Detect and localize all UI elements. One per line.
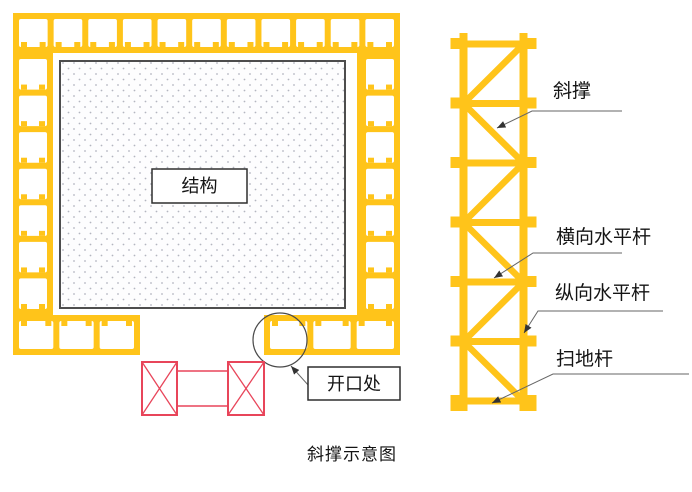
- longitudinal-bar-leader: [524, 311, 663, 333]
- longitudinal-bar-label: 纵向水平杆: [555, 282, 650, 304]
- sweep-bar-label: 扫地杆: [556, 348, 613, 370]
- opening-label: 开口处: [327, 374, 381, 395]
- diagonal-brace-label: 斜撑: [553, 80, 591, 102]
- diagonal-brace-leader: [497, 111, 622, 128]
- opening-callout: 开口处: [291, 366, 400, 400]
- bracing-diagram-svg: 结构 开口处 斜撑 横向水平杆 纵向水平杆: [0, 0, 692, 492]
- opening-leader-arrow: [291, 366, 309, 386]
- opening-passage-marker: [142, 362, 264, 415]
- caption: 斜撑示意图: [307, 445, 397, 465]
- structure-label: 结构: [182, 176, 218, 197]
- elevation-view: 斜撑 横向水平杆 纵向水平杆 扫地杆: [451, 33, 690, 411]
- transverse-bar-label: 横向水平杆: [556, 226, 651, 248]
- plan-view: 结构 开口处: [13, 13, 400, 415]
- structure-label-box: 结构: [152, 169, 247, 203]
- scaffold-tower: [451, 33, 537, 411]
- diagram-canvas: 结构 开口处 斜撑 横向水平杆 纵向水平杆: [0, 0, 692, 492]
